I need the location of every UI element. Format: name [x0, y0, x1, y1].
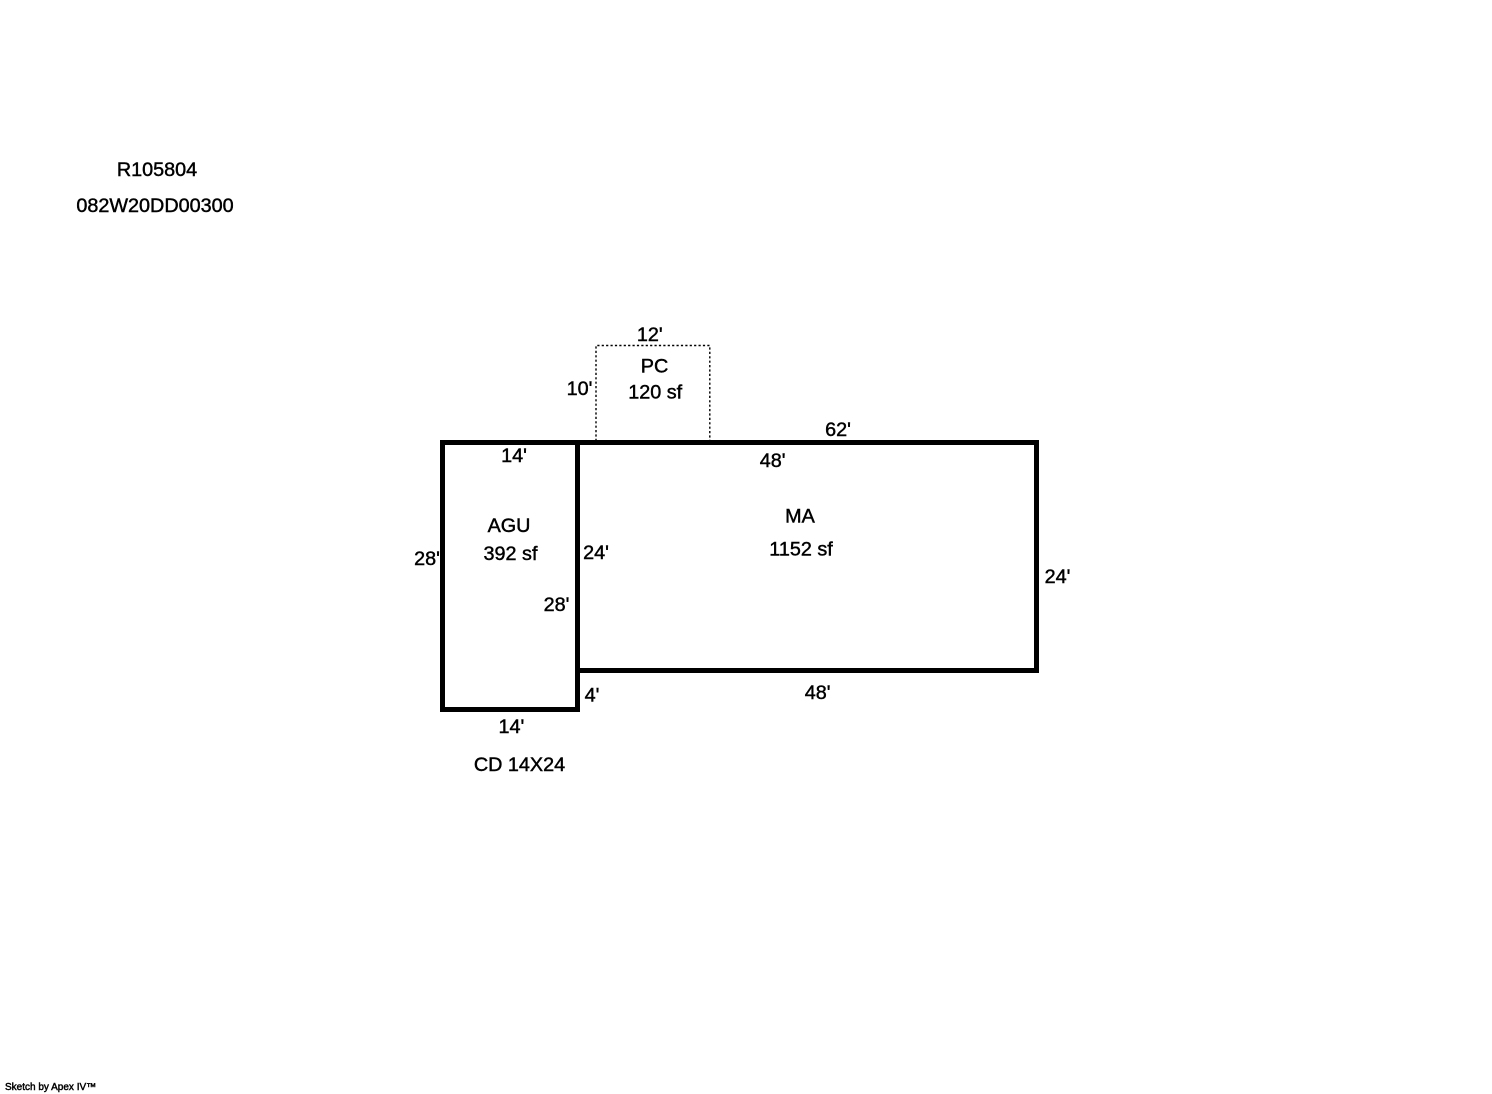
svg-text:392 sf: 392 sf	[484, 543, 538, 565]
svg-text:48': 48'	[760, 450, 786, 472]
svg-text:CD 14X24: CD 14X24	[474, 754, 565, 776]
svg-text:10': 10'	[567, 378, 593, 400]
svg-text:082W20DD00300: 082W20DD00300	[76, 195, 233, 217]
svg-text:MA: MA	[785, 506, 815, 528]
svg-text:14': 14'	[499, 716, 525, 738]
svg-text:28': 28'	[544, 594, 570, 616]
svg-text:Sketch by Apex IV™: Sketch by Apex IV™	[5, 1082, 96, 1093]
svg-text:24': 24'	[583, 542, 609, 564]
svg-text:48': 48'	[805, 682, 831, 704]
svg-text:28': 28'	[414, 548, 440, 570]
svg-text:PC: PC	[641, 356, 668, 378]
svg-text:14': 14'	[501, 445, 527, 467]
svg-text:24': 24'	[1045, 566, 1071, 588]
svg-text:R105804: R105804	[117, 159, 197, 181]
svg-text:4': 4'	[585, 685, 600, 707]
svg-text:62': 62'	[825, 419, 851, 441]
svg-text:1152 sf: 1152 sf	[769, 539, 833, 561]
svg-text:120 sf: 120 sf	[628, 382, 682, 404]
svg-text:12': 12'	[637, 324, 663, 346]
svg-text:AGU: AGU	[488, 515, 531, 537]
